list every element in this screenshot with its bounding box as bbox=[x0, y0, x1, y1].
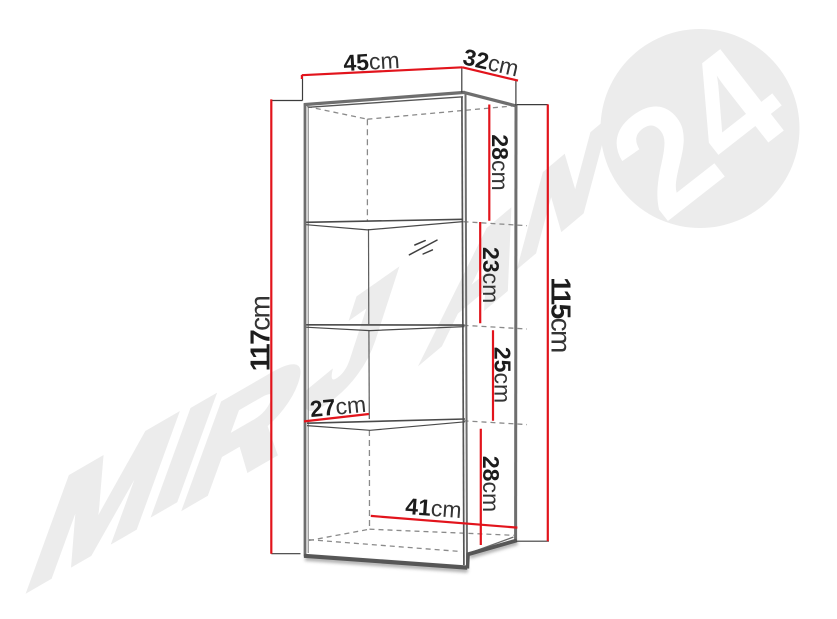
svg-text:117cm: 117cm bbox=[245, 296, 276, 371]
svg-text:27cm: 27cm bbox=[309, 391, 367, 422]
svg-text:115cm: 115cm bbox=[546, 277, 577, 352]
svg-text:45cm: 45cm bbox=[343, 47, 401, 76]
svg-text:24: 24 bbox=[580, 14, 815, 249]
svg-text:32cm: 32cm bbox=[461, 44, 522, 82]
svg-text:23cm: 23cm bbox=[478, 247, 504, 303]
svg-text:28cm: 28cm bbox=[478, 456, 504, 512]
svg-text:41cm: 41cm bbox=[404, 493, 462, 523]
svg-text:25cm: 25cm bbox=[490, 347, 516, 403]
svg-text:28cm: 28cm bbox=[487, 134, 513, 190]
